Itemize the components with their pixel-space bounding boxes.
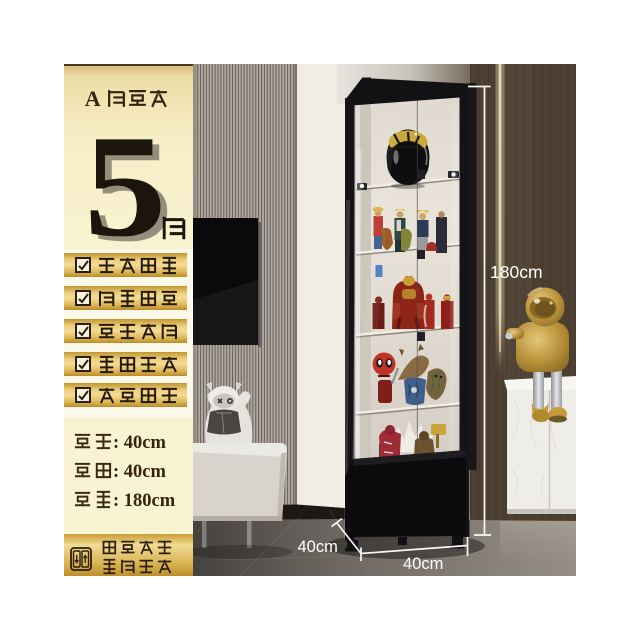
svg-text:40cm: 40cm — [298, 538, 338, 556]
svg-text:180cm: 180cm — [490, 262, 543, 282]
svg-text:40cm: 40cm — [403, 555, 443, 573]
